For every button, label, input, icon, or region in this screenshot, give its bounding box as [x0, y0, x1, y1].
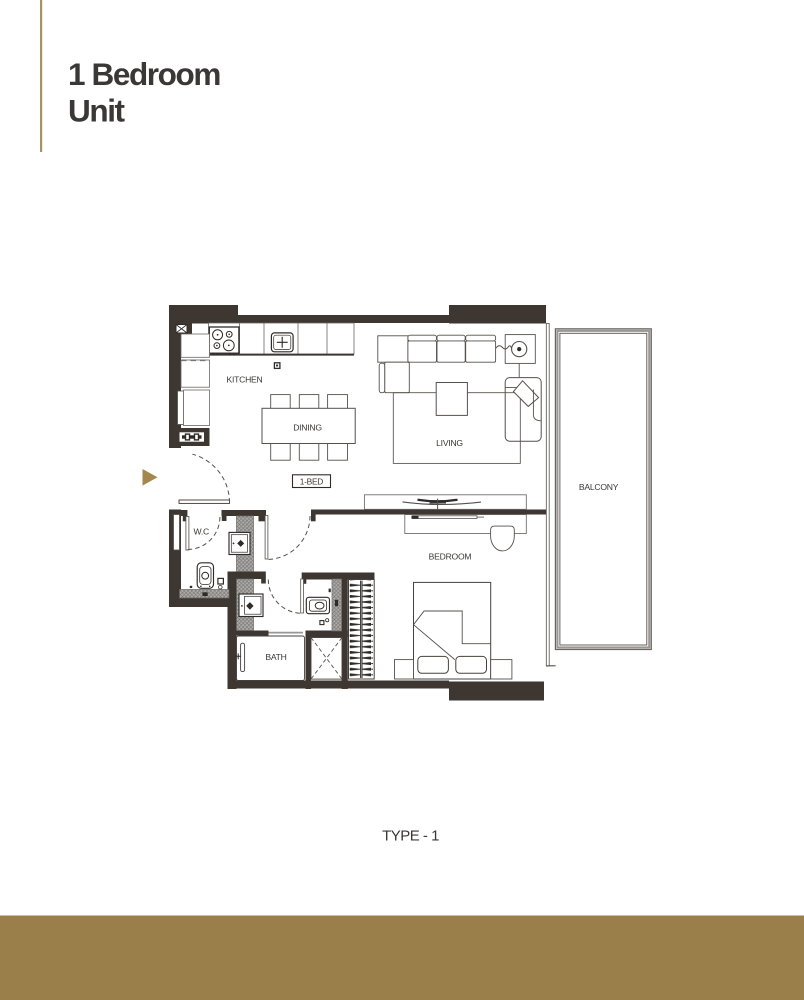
svg-text:1-BED: 1-BED: [300, 476, 324, 486]
svg-text:KITCHEN: KITCHEN: [227, 374, 263, 384]
svg-text:BEDROOM: BEDROOM: [429, 552, 472, 562]
svg-text:W.C: W.C: [193, 526, 209, 536]
svg-text:DINING: DINING: [293, 423, 322, 433]
svg-text:Unit: Unit: [68, 92, 126, 128]
svg-text:LIVING: LIVING: [436, 438, 463, 448]
svg-text:BALCONY: BALCONY: [579, 482, 619, 492]
svg-text:TYPE - 1: TYPE - 1: [382, 827, 439, 844]
svg-text:BATH: BATH: [265, 652, 286, 662]
svg-text:1 Bedroom: 1 Bedroom: [68, 56, 220, 92]
